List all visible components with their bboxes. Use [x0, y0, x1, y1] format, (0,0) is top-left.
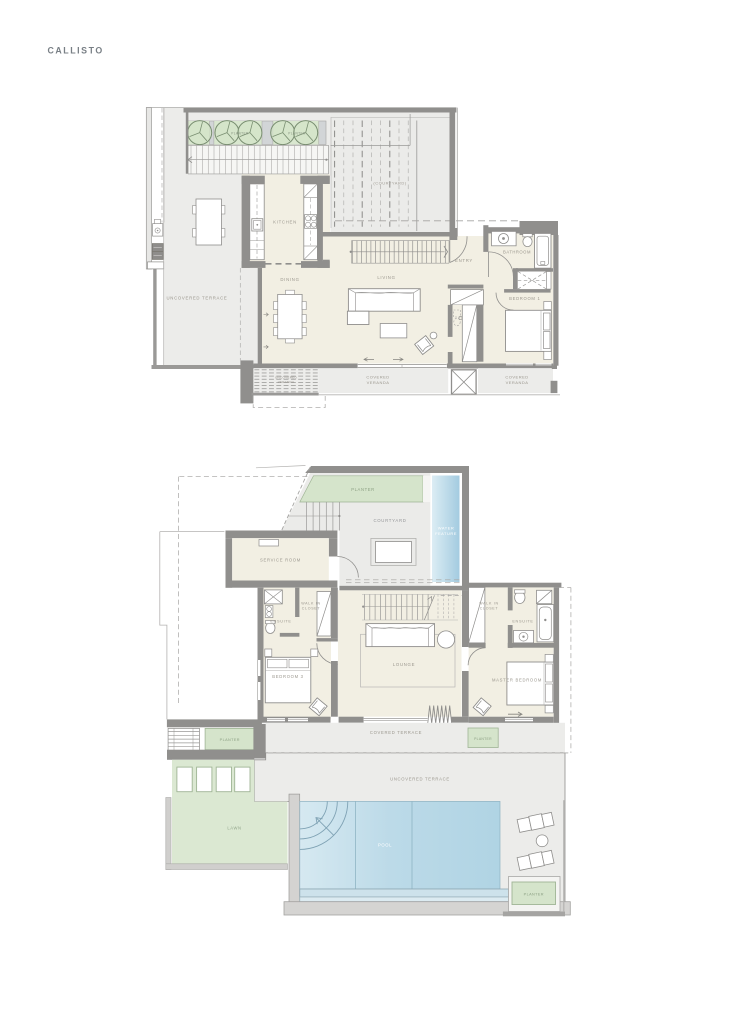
- svg-text:BATHROOM: BATHROOM: [503, 250, 531, 255]
- svg-text:MASTER BEDROOM: MASTER BEDROOM: [492, 678, 542, 683]
- svg-text:COVERED: COVERED: [366, 375, 389, 380]
- svg-text:ENTRY: ENTRY: [455, 258, 473, 263]
- svg-text:CLOSET: CLOSET: [480, 606, 499, 610]
- svg-text:ENSUITE: ENSUITE: [270, 620, 291, 624]
- svg-text:COURTYARD: COURTYARD: [373, 518, 406, 523]
- svg-text:SERVICE ROOM: SERVICE ROOM: [260, 558, 301, 563]
- svg-text:WALK IN: WALK IN: [479, 602, 499, 606]
- svg-text:(COURTYARD): (COURTYARD): [373, 181, 406, 186]
- svg-text:PLANTER: PLANTER: [231, 131, 249, 135]
- svg-text:VERANDA: VERANDA: [278, 380, 295, 384]
- svg-text:WALK IN: WALK IN: [301, 602, 321, 606]
- svg-text:PLANTER: PLANTER: [474, 737, 492, 741]
- svg-text:PLANTER: PLANTER: [524, 893, 544, 897]
- svg-text:DINING: DINING: [280, 277, 299, 282]
- svg-text:COVERED: COVERED: [505, 375, 528, 380]
- svg-text:PLANTER: PLANTER: [220, 738, 240, 742]
- svg-text:BEDROOM 1: BEDROOM 1: [509, 296, 540, 301]
- svg-text:CLOSET: CLOSET: [302, 606, 321, 610]
- svg-text:BEDROOM 3: BEDROOM 3: [272, 674, 303, 679]
- svg-text:POOL: POOL: [378, 843, 392, 848]
- svg-text:LAWN: LAWN: [227, 826, 241, 831]
- svg-text:CALLISTO: CALLISTO: [48, 46, 104, 56]
- svg-text:UNCOVERED: UNCOVERED: [275, 376, 297, 380]
- svg-text:VERANDA: VERANDA: [506, 380, 529, 385]
- svg-text:ENSUITE: ENSUITE: [512, 619, 533, 623]
- svg-text:PLANTER: PLANTER: [288, 131, 306, 135]
- svg-text:UNCOVERED TERRACE: UNCOVERED TERRACE: [166, 296, 227, 301]
- svg-text:LOUNGE: LOUNGE: [393, 662, 415, 667]
- svg-text:UNCOVERED TERRACE: UNCOVERED TERRACE: [390, 777, 450, 782]
- svg-text:COVERED TERRACE: COVERED TERRACE: [370, 730, 422, 735]
- svg-text:VERANDA: VERANDA: [367, 380, 390, 385]
- svg-text:KITCHEN: KITCHEN: [273, 220, 297, 225]
- svg-text:FEATURE: FEATURE: [435, 531, 457, 536]
- svg-text:WATER: WATER: [438, 526, 455, 531]
- svg-text:PLANTER: PLANTER: [351, 487, 375, 492]
- svg-text:LIVING: LIVING: [377, 275, 395, 280]
